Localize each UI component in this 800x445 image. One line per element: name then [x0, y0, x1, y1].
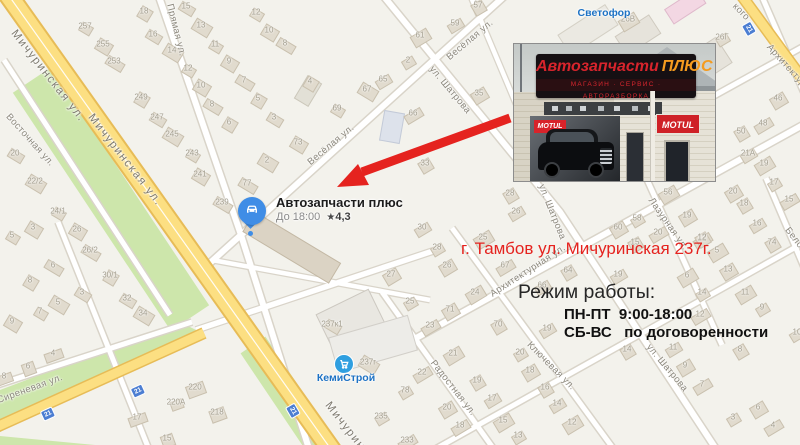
map-building [749, 218, 766, 233]
car-wheel [588, 162, 604, 178]
map-building [250, 8, 265, 22]
marker-label[interactable]: Автозапчасти плюс До 18:00 ★4,3 [276, 195, 403, 223]
map-building [289, 136, 308, 154]
map-building [3, 315, 22, 333]
map-building [749, 401, 768, 419]
map-building [81, 245, 101, 262]
map-building [375, 74, 392, 89]
map-building [24, 221, 43, 239]
map-building [484, 393, 501, 408]
map-building [562, 415, 584, 435]
map-building [561, 265, 577, 281]
map-building [764, 420, 784, 437]
photo-downpipe [650, 91, 655, 182]
map-building [220, 55, 239, 73]
map-building [178, 1, 195, 16]
map-building [133, 306, 155, 326]
map-building [119, 293, 136, 308]
services-strip [544, 102, 662, 115]
store-sign: АвтозапчастиПЛЮС МАГАЗИН · СЕРВИС · АВТО… [536, 54, 696, 98]
map-building [185, 381, 206, 398]
map-building [514, 348, 529, 362]
map-building [266, 112, 283, 127]
map-building [549, 398, 566, 413]
map-building [170, 399, 184, 412]
map-building [209, 40, 224, 54]
map-building [105, 56, 125, 73]
map-building [733, 344, 749, 360]
photo-window [664, 140, 690, 182]
map-building [734, 126, 750, 142]
car-banner: MOTUL [530, 116, 620, 182]
map-building [145, 29, 162, 44]
map-building [191, 18, 213, 38]
map-building [693, 379, 713, 396]
map-building [735, 285, 757, 305]
car-icon [244, 201, 260, 222]
map-building [203, 99, 223, 116]
schedule-line-2: СБ-ВС по договоренности [564, 324, 768, 341]
map-building [508, 206, 525, 221]
map-building [257, 153, 279, 173]
map-building [160, 433, 175, 445]
schedule-line-1: ПН-ПТ 9:00-18:00 [564, 306, 692, 323]
marker-rating: 4,3 [335, 211, 350, 223]
marker-hours: До 18:00 [276, 211, 320, 223]
map-building [48, 295, 70, 315]
map-building [134, 92, 150, 108]
map-building [765, 237, 781, 253]
map-building [724, 185, 743, 203]
map-building [418, 158, 434, 174]
map-building [754, 156, 776, 176]
map-canvas[interactable]: 2572552532492472452432412391816141210861… [0, 0, 800, 445]
address-caption: г. Тамбов ул. Мичуринская 237г. [461, 239, 712, 259]
map-building [496, 260, 516, 277]
map-building [79, 22, 94, 36]
map-building [769, 92, 788, 110]
map-building [398, 435, 418, 445]
map-building [94, 38, 113, 56]
poi-label[interactable]: КемиСтрой [317, 372, 375, 384]
map-building [438, 401, 457, 419]
map-building [191, 168, 210, 186]
store-sign-subtitle: МАГАЗИН · СЕРВИС · АВТОРАЗБОРКА [536, 79, 696, 91]
map-building [222, 117, 238, 133]
map-building [162, 127, 184, 147]
map-building [23, 275, 39, 291]
marker-subtitle: До 18:00 ★4,3 [276, 211, 403, 223]
map-building [665, 342, 682, 357]
sign-accent-text: ПЛЮС [662, 58, 713, 75]
map-building [737, 198, 753, 214]
map-building [443, 346, 465, 366]
photo-window [626, 132, 644, 182]
map-building [414, 222, 431, 237]
poi-label[interactable]: Светофор [578, 7, 631, 19]
map-building [6, 231, 21, 245]
map-building [209, 407, 227, 423]
map-building [438, 259, 457, 277]
map-building [52, 207, 67, 221]
sign-primary-text: Автозапчасти [536, 58, 659, 75]
map-building [756, 303, 771, 317]
map-building [331, 104, 346, 118]
map-building [678, 209, 697, 227]
car-silhouette-grille [600, 148, 612, 164]
map-building [149, 112, 166, 127]
map-building [404, 108, 424, 125]
marker-anchor-dot [248, 231, 253, 236]
map-building [44, 260, 64, 277]
map-building [402, 56, 417, 70]
cart-icon[interactable] [334, 354, 354, 374]
map-building [399, 386, 414, 400]
map-building [137, 6, 153, 22]
map-building [780, 194, 800, 211]
map-building [235, 75, 255, 92]
motul-wall-sign: MOTUL [656, 114, 700, 134]
map-building [539, 323, 556, 338]
store-sign-title: АвтозапчастиПЛЮС [536, 58, 696, 76]
map-building [754, 118, 774, 135]
map-building [521, 364, 540, 382]
map-building [7, 148, 24, 163]
map-building [512, 431, 527, 445]
storefront-photo: АвтозапчастиПЛЮС МАГАЗИН · СЕРВИС · АВТО… [513, 43, 716, 182]
map-building [375, 412, 390, 426]
map-building [25, 174, 47, 194]
map-building [676, 359, 695, 377]
map-building [491, 319, 507, 335]
schedule-title: Режим работы: [518, 281, 655, 304]
map-building [276, 38, 296, 55]
map-building [503, 188, 519, 204]
map-building [68, 223, 87, 241]
map-building [186, 149, 201, 163]
marker-title: Автозапчасти плюс [276, 195, 403, 210]
map-building [251, 93, 267, 109]
map-building [789, 327, 800, 342]
map-building [238, 178, 258, 195]
store-marker-pin[interactable] [238, 197, 266, 225]
map-building [260, 24, 279, 42]
map-building [103, 270, 119, 286]
map-building [357, 82, 379, 102]
car-wheel [544, 162, 560, 178]
map-building [34, 307, 49, 321]
map-building [470, 375, 486, 391]
map-building [413, 367, 433, 384]
map-building [727, 413, 742, 427]
